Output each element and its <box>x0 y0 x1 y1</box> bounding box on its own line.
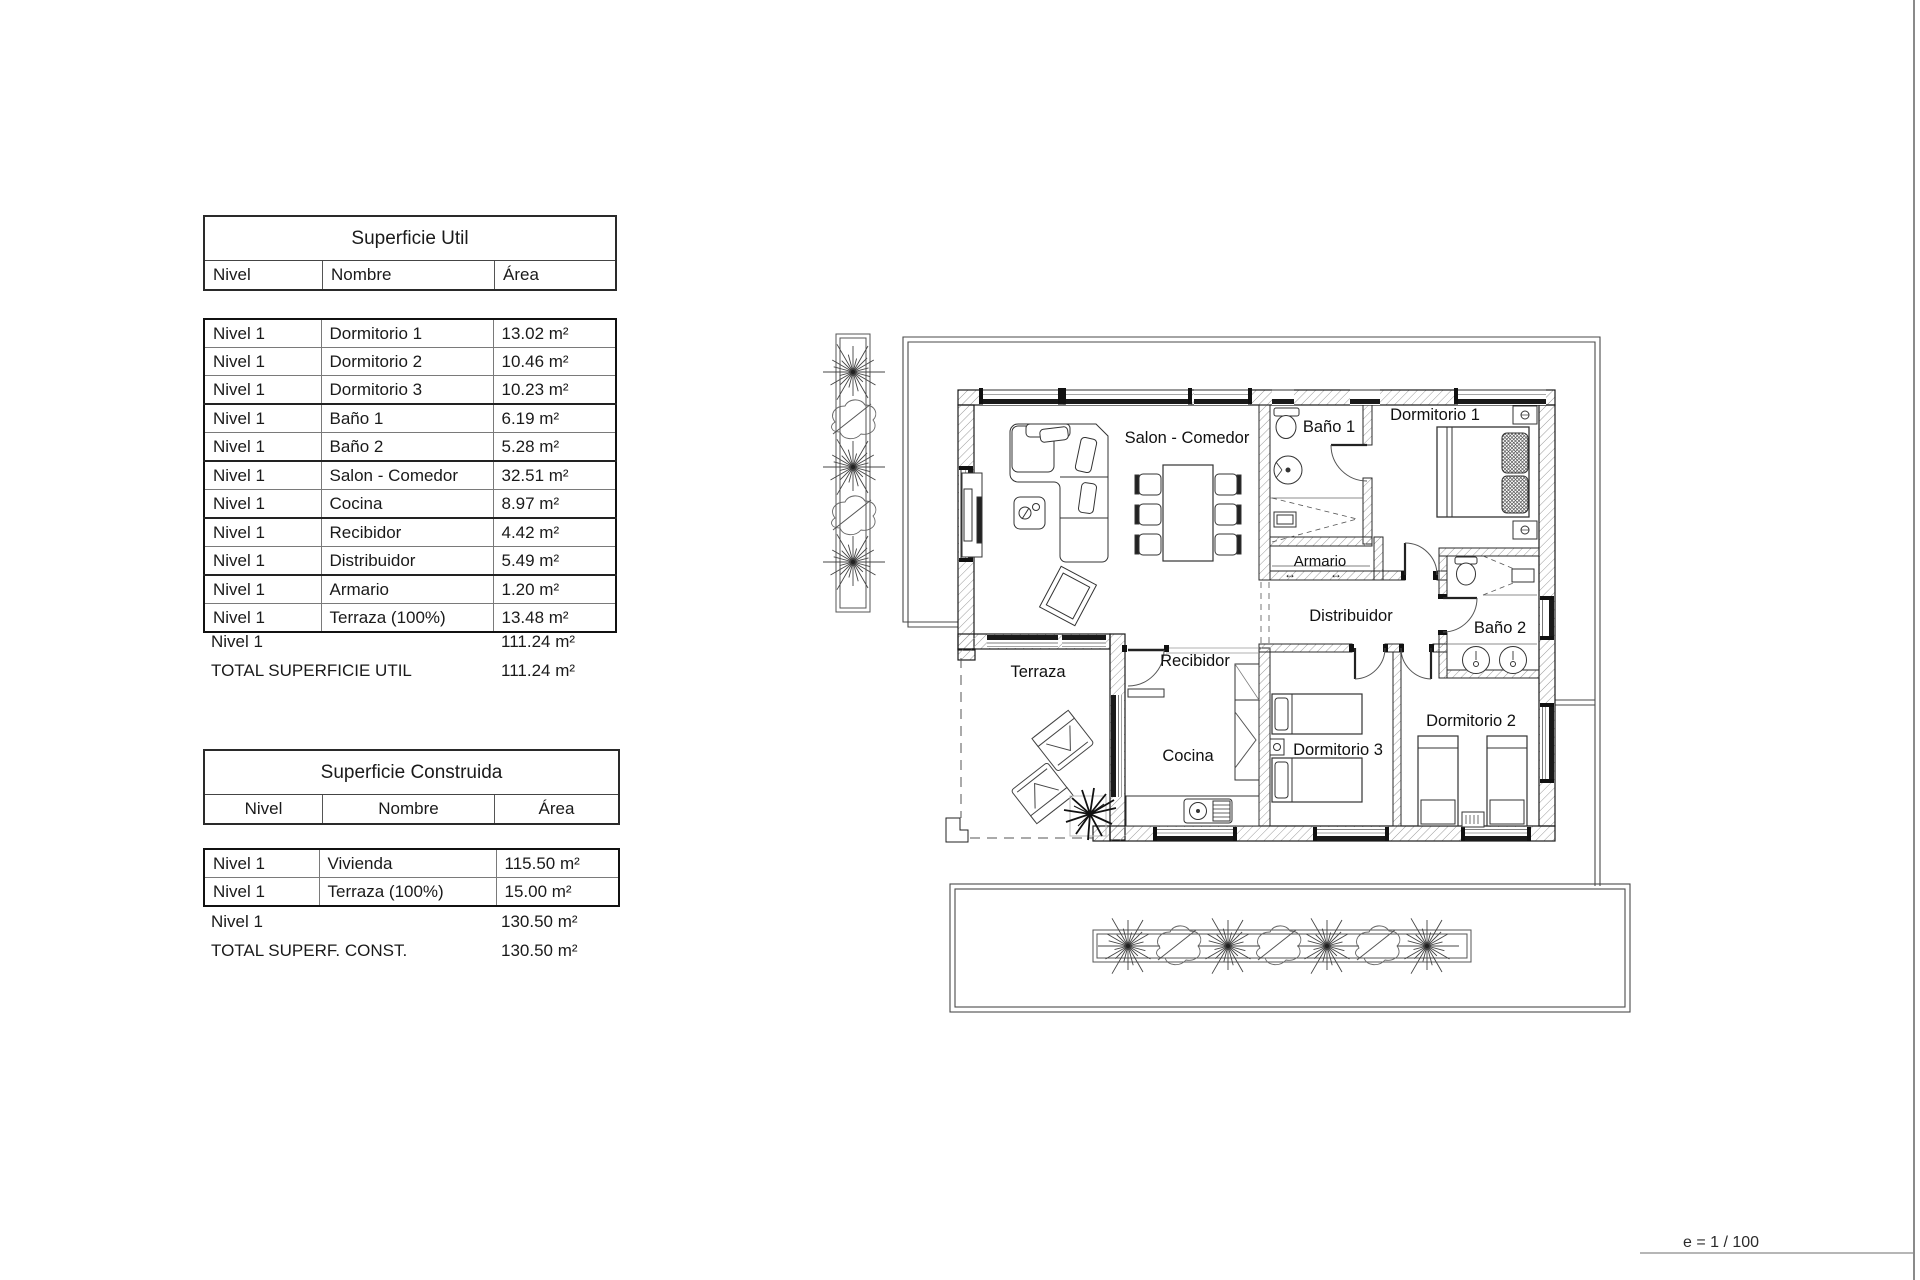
bedroom2-door <box>1399 644 1434 679</box>
room-label-distribuidor: Distribuidor <box>1309 607 1393 625</box>
room-label-recibidor: Recibidor <box>1160 652 1230 670</box>
room-label-dormitorio1: Dormitorio 1 <box>1390 406 1480 424</box>
bedroom1-door <box>1401 543 1438 580</box>
bush-icon <box>832 400 876 439</box>
bathroom1-door <box>1331 445 1367 481</box>
bedroom3-door <box>1349 644 1388 679</box>
tree-icon <box>823 534 885 589</box>
lounge-chair <box>1011 762 1073 823</box>
terrace-column <box>946 818 968 842</box>
bush-icon <box>1157 926 1201 965</box>
room-label-salon: Salon - Comedor <box>1125 429 1250 447</box>
coffee-table <box>1040 566 1097 625</box>
bedroom2-furniture <box>1418 736 1527 827</box>
room-label-cocina: Cocina <box>1162 747 1214 765</box>
side-table <box>1014 497 1045 529</box>
bathroom2-door <box>1438 594 1477 635</box>
bathroom2-fixtures <box>1447 556 1537 674</box>
scale-note: e = 1 / 100 <box>1683 1234 1759 1252</box>
tree-icon <box>1198 918 1260 973</box>
bedroom1-furniture <box>1437 406 1537 539</box>
sliding-door-arrow-icon: ↔ <box>1284 567 1296 581</box>
drawing-sheet: Superficie Util Nivel Nombre Área Nivel … <box>0 0 1920 1280</box>
sheet-frame <box>1640 0 1914 1280</box>
sofa <box>1010 424 1108 562</box>
floor-plan: Salon - Comedor Baño 1 Dormitorio 1 Arma… <box>0 0 1920 1280</box>
tree-icon <box>823 439 885 494</box>
sliding-door-arrow-icon: ↔ <box>1330 567 1342 581</box>
tree-icon <box>1297 918 1359 973</box>
room-label-dormitorio2: Dormitorio 2 <box>1426 712 1516 730</box>
room-label-bano2: Baño 2 <box>1474 619 1526 637</box>
kitchen-fixtures <box>1126 664 1259 826</box>
tree-icon <box>1397 918 1459 973</box>
bush-icon <box>1257 926 1301 965</box>
tree-icon <box>823 344 885 399</box>
room-label-bano1: Baño 1 <box>1303 418 1355 436</box>
tree-icon <box>1098 918 1160 973</box>
dining-table <box>1163 465 1213 561</box>
tv-unit <box>962 473 982 557</box>
room-label-terraza: Terraza <box>1010 663 1066 681</box>
room-label-dormitorio3: Dormitorio 3 <box>1293 741 1383 759</box>
bush-icon <box>1356 926 1400 965</box>
bush-icon <box>832 496 876 535</box>
lounge-chair <box>1032 710 1094 771</box>
hall-console <box>1128 689 1164 697</box>
